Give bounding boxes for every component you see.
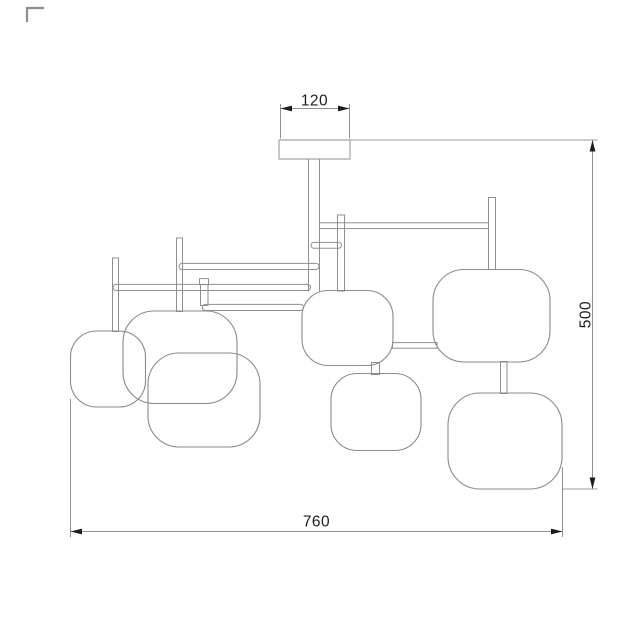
- lampshade-right-upper: [433, 270, 550, 363]
- stem-right-lower-shade: [501, 362, 508, 394]
- lampshade-right-lower: [448, 393, 562, 489]
- lampshade-left-upper: [123, 311, 237, 404]
- lampshade-center-lower: [331, 374, 421, 451]
- lampshade-center-upper: [302, 291, 393, 366]
- arm-left-upper: [179, 263, 319, 269]
- dimension-label-height: 500: [578, 301, 595, 328]
- riser-right: [489, 198, 496, 270]
- corner-mark: [27, 8, 44, 22]
- central-stem: [309, 159, 320, 292]
- arrowhead-bottom-500: [590, 478, 596, 490]
- arrowhead-left-120: [281, 106, 293, 112]
- lampshades: [71, 270, 563, 490]
- technical-drawing-canvas: 120 500 760: [0, 0, 630, 630]
- dimension-canopy-width: 120: [281, 93, 350, 139]
- chandelier-dimension-drawing: 120 500 760: [0, 0, 630, 630]
- dimension-height: 500: [350, 140, 598, 489]
- fixture-frame: [113, 140, 508, 394]
- dimension-label-canopy-width: 120: [301, 93, 328, 110]
- arm-left-lower: [203, 304, 304, 310]
- lampshade-far-left: [71, 331, 146, 407]
- arm-left-middle: [113, 284, 311, 290]
- arrowhead-left-760: [71, 529, 83, 535]
- arm-center-short: [311, 242, 342, 248]
- riser-left-outer: [113, 258, 119, 332]
- arm-joint-block: [200, 279, 209, 285]
- dimension-overall-width: 760: [71, 399, 563, 537]
- riser-left-inner: [177, 238, 183, 312]
- arm-drop-link: [201, 285, 209, 306]
- ceiling-canopy: [279, 140, 350, 159]
- connector-center-to-right-shade: [393, 343, 438, 349]
- arrowhead-top-500: [590, 140, 596, 152]
- arrowhead-right-120: [338, 106, 350, 112]
- riser-center: [338, 215, 345, 291]
- arrowhead-right-760: [551, 529, 563, 535]
- lampshade-left-lower: [148, 353, 260, 447]
- dimension-label-overall-width: 760: [303, 514, 330, 531]
